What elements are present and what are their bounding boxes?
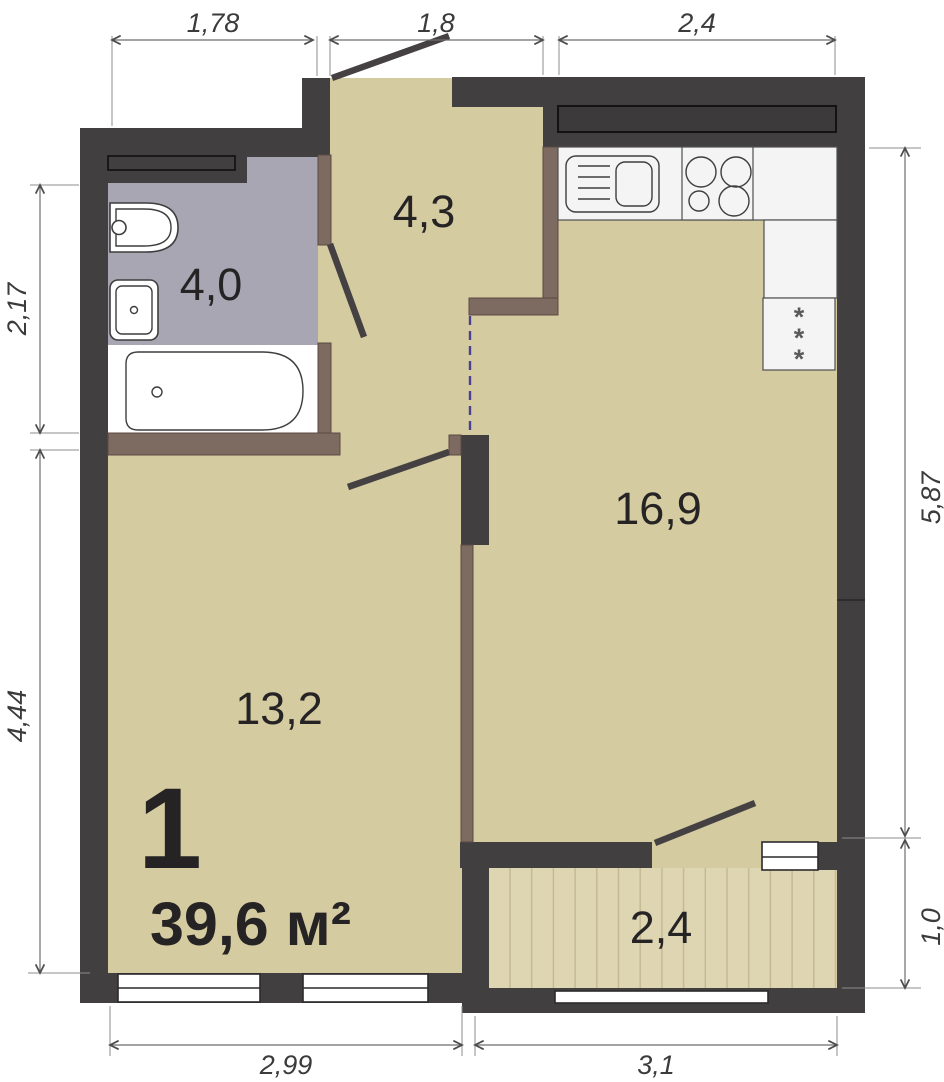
wall-entry-jamb: [302, 78, 330, 157]
dim-left-1: 2,17: [2, 282, 32, 337]
dim-top-1: 1,78: [187, 8, 240, 38]
dim-left-2: 4,44: [2, 690, 32, 743]
kitchen-partition-horizontal: [469, 298, 558, 315]
bathroom-duct-niche: [108, 156, 235, 170]
wall-mid-pier: [461, 435, 489, 545]
balcony-block-window: [762, 842, 818, 870]
wall-top-kitchen: [452, 77, 865, 107]
dim-top-3: 2,4: [677, 8, 716, 38]
dim-bottom-1: 2,99: [259, 1050, 313, 1080]
wall-divider-right-piece: [818, 842, 837, 870]
balcony-area-label: 2,4: [630, 902, 693, 953]
room-kitchen-partition: [461, 545, 473, 842]
room-bathroom-partition: [108, 433, 340, 455]
dim-right-2: 1,0: [916, 908, 944, 946]
bathroom-partition-lower: [318, 343, 331, 435]
wall-left: [80, 128, 108, 1003]
kitchen-partition-vertical: [543, 147, 558, 315]
bedroom-area-label: 13,2: [235, 683, 323, 734]
bathroom-area-label: 4,0: [180, 259, 243, 310]
floor-plan: * * *: [0, 0, 944, 1082]
unit-number: 1: [138, 765, 202, 893]
kitchen-counter-right: [764, 220, 837, 298]
kitchen-living-area-label: 16,9: [614, 483, 702, 534]
entry-threshold-floor: [330, 78, 452, 130]
bathtub-alcove: [108, 345, 318, 433]
toilet-flush-icon: [112, 221, 126, 235]
total-area-label: 39,6 м²: [150, 890, 351, 958]
bathroom-partition-upper: [318, 155, 331, 245]
entrance-door-leaf: [332, 36, 449, 78]
wall-right: [837, 77, 865, 1013]
floor-plan-svg: * * *: [0, 0, 944, 1082]
balcony-glazing-window: [555, 991, 768, 1003]
fridge-mark-icon: *: [794, 344, 805, 374]
wall-balcony-left: [462, 842, 489, 1013]
hallway-area-label: 4,3: [393, 186, 456, 237]
hallway-top-floor: [452, 107, 543, 130]
dim-right-1: 5,87: [916, 471, 944, 525]
dim-bottom-2: 3,1: [637, 1050, 675, 1080]
dim-top-2: 1,8: [417, 8, 455, 38]
room-door-jamb: [449, 435, 461, 455]
kitchen-window-ledge: [558, 106, 836, 132]
